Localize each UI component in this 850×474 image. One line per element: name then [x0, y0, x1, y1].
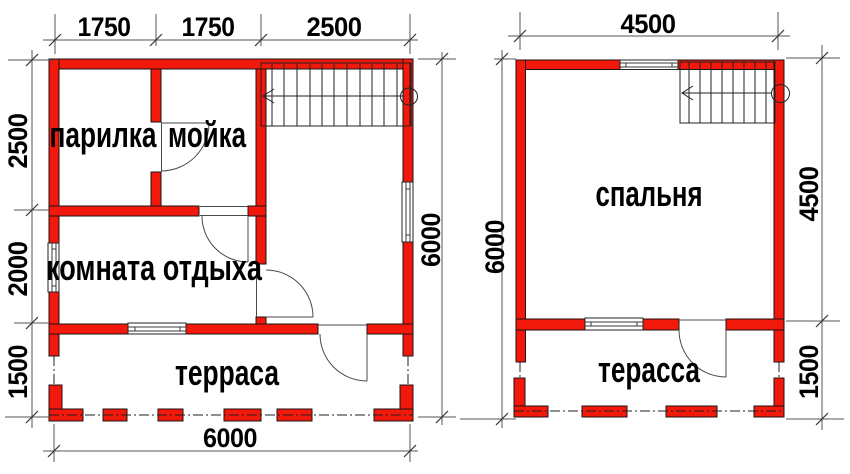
- svg-text:6000: 6000: [416, 213, 446, 267]
- svg-text:6000: 6000: [480, 220, 510, 274]
- svg-text:2500: 2500: [3, 114, 33, 169]
- svg-text:4500: 4500: [621, 9, 676, 39]
- svg-text:1750: 1750: [78, 12, 131, 42]
- svg-text:2500: 2500: [307, 12, 362, 42]
- svg-text:6000: 6000: [203, 423, 257, 453]
- svg-text:1750: 1750: [182, 12, 235, 42]
- svg-text:терраса: терраса: [175, 352, 280, 393]
- svg-text:мойка: мойка: [168, 114, 247, 155]
- svg-text:1500: 1500: [3, 345, 33, 399]
- svg-text:2000: 2000: [3, 242, 33, 297]
- svg-text:комната отдыха: комната отдыха: [46, 247, 263, 288]
- svg-text:терасса: терасса: [598, 349, 701, 390]
- svg-text:1500: 1500: [794, 345, 824, 399]
- svg-text:парилка: парилка: [50, 114, 158, 155]
- svg-text:спальня: спальня: [596, 173, 703, 214]
- svg-text:4500: 4500: [794, 167, 824, 222]
